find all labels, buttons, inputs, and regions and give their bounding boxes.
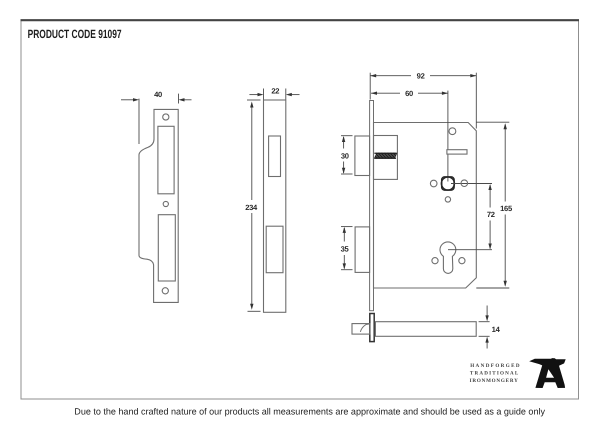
svg-text:HANDFORGED: HANDFORGED	[470, 363, 520, 369]
svg-text:IRONMONGERY: IRONMONGERY	[470, 378, 519, 384]
svg-text:35: 35	[341, 244, 350, 253]
svg-text:234: 234	[245, 203, 258, 212]
svg-text:72: 72	[487, 210, 495, 219]
svg-text:165: 165	[500, 204, 513, 213]
svg-text:14: 14	[492, 325, 501, 334]
svg-text:PRODUCT CODE 91097: PRODUCT CODE 91097	[28, 27, 122, 41]
svg-text:92: 92	[417, 71, 425, 80]
svg-text:40: 40	[154, 90, 162, 99]
svg-text:Due to the hand crafted nature: Due to the hand crafted nature of our pr…	[74, 406, 545, 416]
svg-text:TRADITIONAL: TRADITIONAL	[470, 371, 519, 377]
svg-text:60: 60	[405, 89, 413, 98]
svg-text:30: 30	[341, 151, 349, 160]
svg-text:22: 22	[271, 86, 279, 95]
